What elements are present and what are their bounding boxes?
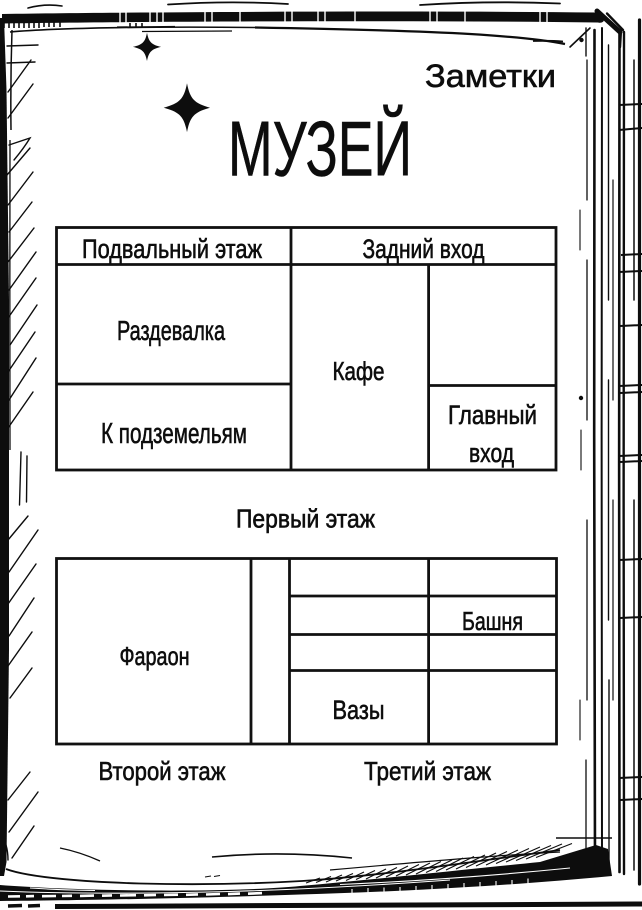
svg-text:Башня: Башня — [462, 606, 523, 636]
svg-text:Заметки: Заметки — [425, 58, 556, 94]
svg-text:Первый этаж: Первый этаж — [236, 504, 376, 534]
svg-text:Второй этаж: Второй этаж — [99, 756, 227, 786]
svg-text:Подвальный этаж: Подвальный этаж — [82, 234, 262, 264]
svg-text:Главный: Главный — [448, 400, 537, 430]
svg-text:Задний вход: Задний вход — [363, 234, 485, 264]
svg-text:Фараон: Фараон — [120, 641, 190, 671]
svg-text:Вазы: Вазы — [333, 695, 385, 725]
svg-text:Третий этаж: Третий этаж — [364, 756, 492, 786]
svg-text:Кафе: Кафе — [333, 356, 385, 386]
svg-text:К подземельям: К подземельям — [101, 418, 247, 450]
svg-text:МУЗЕЙ: МУЗЕЙ — [228, 105, 412, 193]
svg-text:Раздевалка: Раздевалка — [117, 315, 225, 346]
svg-text:вход: вход — [469, 438, 514, 468]
